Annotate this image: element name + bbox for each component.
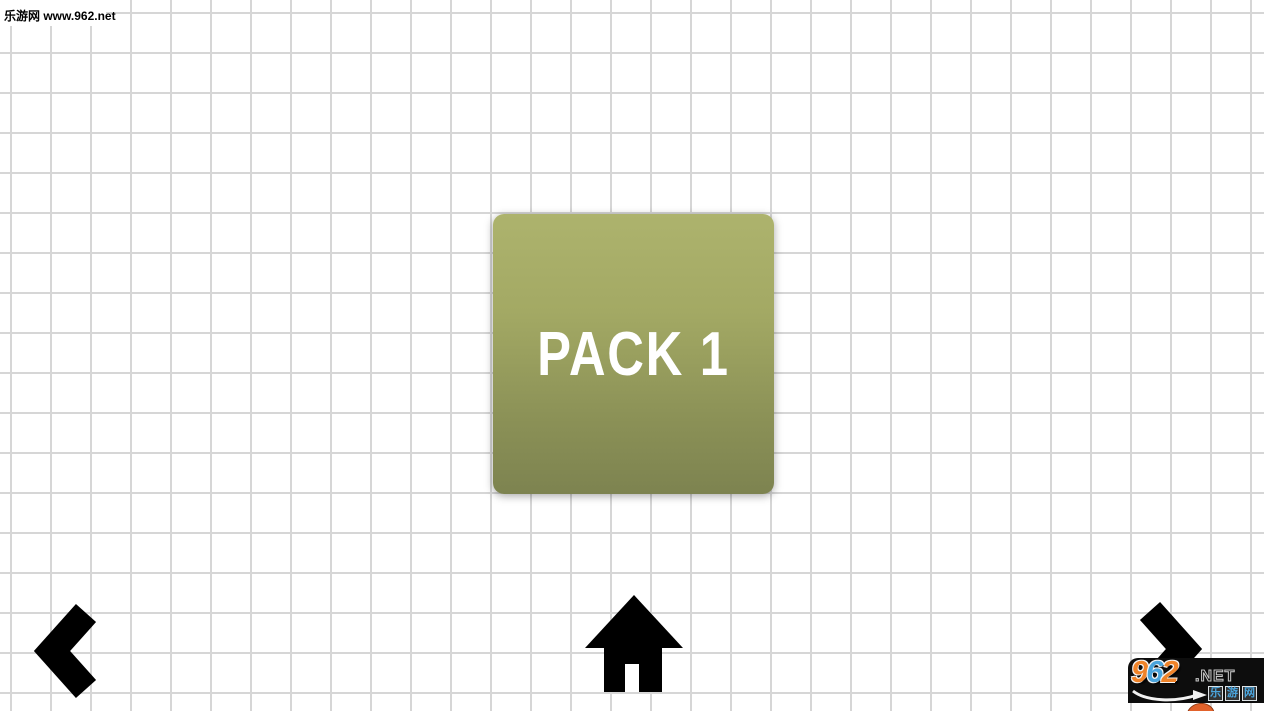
site-logo-digit-9: 9	[1131, 654, 1146, 689]
pack-1-label: PACK 1	[537, 319, 730, 390]
top-site-watermark-label: 乐游网 www.962.net	[4, 9, 116, 23]
site-logo-digit-2: 2	[1162, 654, 1177, 689]
swoosh-icon	[1131, 689, 1209, 703]
site-logo-tld: .NET	[1195, 668, 1235, 686]
site-name-char-1: 乐	[1208, 686, 1223, 701]
site-name-char-2: 游	[1225, 686, 1240, 701]
bottom-site-watermark: 962 .NET 乐 游 网	[1128, 658, 1264, 703]
game-screen: 乐游网 www.962.net PACK 1 962 .NET	[0, 0, 1264, 711]
site-logo-digit-6: 6	[1146, 654, 1161, 689]
site-name-char-3: 网	[1242, 686, 1257, 701]
pack-1-button[interactable]: PACK 1	[493, 214, 774, 494]
home-button[interactable]	[585, 594, 683, 692]
chevron-left-icon	[22, 600, 98, 700]
site-logo-name: 乐 游 网	[1208, 686, 1257, 701]
site-logo-digits: 962	[1131, 654, 1177, 690]
top-site-watermark: 乐游网 www.962.net	[0, 0, 106, 26]
home-icon	[585, 594, 683, 692]
prev-pack-button[interactable]	[22, 600, 98, 700]
